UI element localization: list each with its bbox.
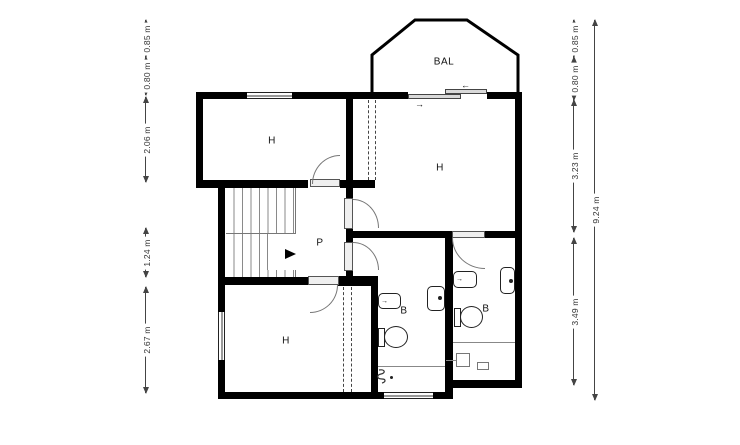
dimension-label: 1.24 m <box>142 236 152 269</box>
wall <box>515 92 522 388</box>
dimension-line: 0.85 m <box>573 20 574 57</box>
floor-plan: BAL → ← <box>0 0 740 445</box>
wall <box>445 380 522 388</box>
shower-connector-line <box>446 360 456 361</box>
dimension-arrow-icon <box>143 271 149 278</box>
door-leaf <box>344 198 353 229</box>
room-label-bathroom-left: B <box>400 306 407 317</box>
stair-direction-arrow-icon <box>285 249 296 259</box>
door-leaf <box>308 276 339 285</box>
wall <box>346 92 353 199</box>
dimension-line: 1.24 m <box>145 228 146 277</box>
door-swing-arc <box>452 238 485 269</box>
wall <box>218 277 308 285</box>
dimension-line: 3.23 m <box>573 100 574 232</box>
dimension-arrow-icon <box>571 237 577 244</box>
window <box>218 312 225 360</box>
dimension-arrow-icon <box>571 226 577 233</box>
dimension-arrow-icon <box>143 286 149 293</box>
wall <box>433 392 445 399</box>
dimension-line-total: 9.24 m <box>594 20 595 400</box>
wall <box>485 231 515 238</box>
dimension-arrow-icon <box>571 379 577 386</box>
window <box>384 392 433 399</box>
wall <box>196 180 308 188</box>
drain-icon <box>375 368 391 386</box>
door-swing-arc <box>310 285 338 313</box>
toilet-bowl <box>460 306 483 328</box>
dimension-line: 0.80 m <box>145 57 146 95</box>
dimension-arrow-icon <box>592 19 598 26</box>
room-label-bedroom-top-right: H <box>436 163 444 174</box>
dimension-arrow-icon <box>571 99 577 106</box>
dimension-arrow-icon <box>592 394 598 401</box>
wall <box>196 92 203 188</box>
dimension-line: 0.80 m <box>573 57 574 100</box>
tap-icon: → <box>456 276 463 283</box>
room-label-hall: P <box>316 238 323 249</box>
window <box>247 92 292 99</box>
wall <box>218 188 225 312</box>
dimension-label: 3.49 m <box>570 295 580 328</box>
dimension-label: 0.80 m <box>142 59 152 92</box>
tap-dot-icon <box>438 296 442 300</box>
room-label-bathroom-right: B <box>482 304 489 315</box>
slide-direction-arrow-icon: ← <box>461 81 470 90</box>
tap-dot-icon <box>509 279 513 283</box>
dimension-label: 2.06 m <box>142 123 152 156</box>
wardrobe-dashed <box>343 287 352 392</box>
dimension-arrow-icon <box>143 176 149 183</box>
wardrobe-dashed <box>368 100 376 180</box>
dimension-label: 9.24 m <box>591 193 601 226</box>
wall <box>196 92 247 99</box>
dimension-line: 2.06 m <box>145 97 146 182</box>
door-swing-arc <box>312 155 340 184</box>
wall <box>346 92 408 99</box>
room-label-bedroom-top-left: H <box>268 136 276 147</box>
dimension-arrow-icon <box>143 227 149 234</box>
dimension-label: 0.80 m <box>570 62 580 95</box>
shower-partition-line <box>453 342 515 343</box>
door-leaf <box>452 231 485 238</box>
dimension-label: 2.67 m <box>142 323 152 356</box>
wall <box>487 92 515 99</box>
dimension-line: 0.85 m <box>145 20 146 57</box>
dimension-label: 0.85 m <box>142 22 152 55</box>
shower-tray <box>456 353 470 367</box>
toilet-bowl <box>384 326 408 348</box>
wall <box>218 392 384 399</box>
room-label-bedroom-bottom-left: H <box>282 336 290 347</box>
dimension-arrow-icon <box>143 96 149 103</box>
wall <box>445 231 453 399</box>
dimension-line: 3.49 m <box>573 238 574 385</box>
balcony-outline <box>368 15 524 95</box>
door-leaf <box>344 242 353 271</box>
door-swing-arc <box>353 199 379 228</box>
dimension-arrow-icon <box>143 387 149 394</box>
dimension-label: 3.23 m <box>570 149 580 182</box>
room-label-balcony: BAL <box>434 57 454 68</box>
bidet <box>427 286 445 311</box>
wall <box>292 92 346 99</box>
slide-direction-arrow-icon: → <box>415 100 424 109</box>
dimension-label: 0.85 m <box>570 22 580 55</box>
shower-partition-line <box>378 366 445 367</box>
wall <box>346 231 452 238</box>
dimension-line: 2.67 m <box>145 287 146 393</box>
tap-icon: → <box>381 298 388 305</box>
door-swing-arc <box>353 242 379 270</box>
shower-accessory <box>477 362 489 370</box>
drain-dot-icon <box>390 376 393 379</box>
